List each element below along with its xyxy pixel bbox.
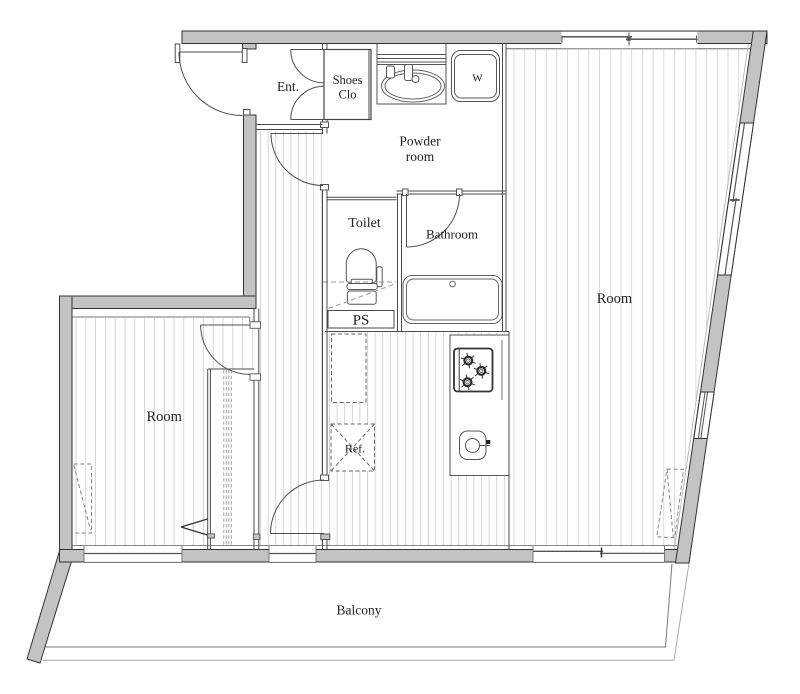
svg-text:room: room xyxy=(406,149,435,164)
svg-text:Powder: Powder xyxy=(399,134,441,149)
svg-text:Balcony: Balcony xyxy=(337,603,382,618)
svg-text:Shoes: Shoes xyxy=(333,73,363,87)
svg-text:Toilet: Toilet xyxy=(348,216,381,231)
svg-text:Bathroom: Bathroom xyxy=(426,226,478,241)
svg-text:Ref.: Ref. xyxy=(345,442,365,456)
svg-text:Clo: Clo xyxy=(338,88,356,102)
svg-text:W: W xyxy=(472,73,483,85)
svg-text:Ent.: Ent. xyxy=(277,79,299,94)
svg-text:Room: Room xyxy=(146,409,182,425)
svg-text:PS: PS xyxy=(353,313,370,329)
svg-text:Room: Room xyxy=(597,291,633,307)
